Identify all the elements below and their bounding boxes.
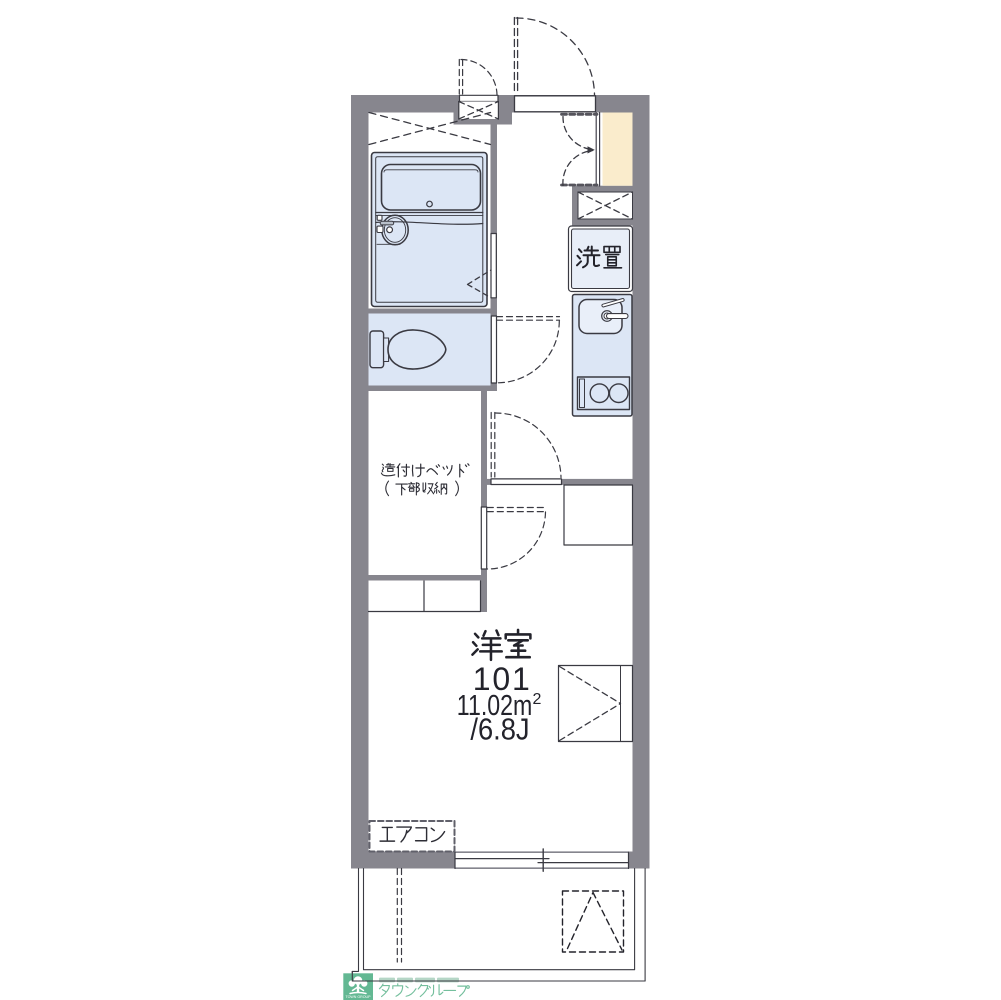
svg-text:2: 2	[533, 691, 542, 708]
svg-text:TOWN GROUP: TOWN GROUP	[345, 995, 371, 999]
svg-text:/6.8J: /6.8J	[470, 713, 529, 747]
